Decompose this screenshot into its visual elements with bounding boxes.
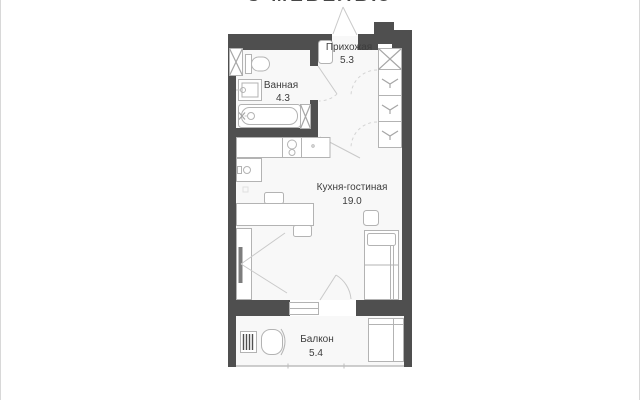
hallway-label: Прихожая (326, 42, 372, 53)
kitchen-living-label: Кухня-гостиная (317, 182, 388, 193)
floor-plan-screenshot: С МЕБЕЛЬЮ (0, 0, 640, 400)
wall-entry-step (374, 22, 394, 44)
kitchen-sink (237, 159, 262, 182)
wall-bottom-left (228, 300, 290, 316)
balcony-area: 5.4 (309, 348, 323, 359)
bathroom-label: Ванная (264, 80, 298, 91)
wall-bath-bottom (236, 128, 318, 138)
bathtub (239, 105, 301, 128)
wall-left (228, 34, 236, 316)
wall-bottom-right (356, 300, 412, 316)
wall-balcony-right (404, 316, 412, 367)
wall-bath-hall-lower (310, 100, 318, 128)
floor-plan-drawing: Прихожая 5.3 Ванная 4.3 Кухня-гостиная 1… (0, 0, 640, 400)
chair (294, 226, 312, 237)
radiator (241, 332, 257, 353)
toilet (246, 55, 270, 74)
chair (265, 193, 284, 204)
bathroom-sink (236, 80, 262, 101)
stool (364, 211, 379, 226)
kitchen-counter (237, 138, 331, 158)
hallway-area: 5.3 (340, 55, 354, 66)
bathroom-area: 4.3 (276, 93, 290, 104)
x-cross-icon (230, 49, 243, 76)
wall-right (402, 44, 412, 316)
bottom-window (290, 303, 319, 315)
bed (365, 231, 399, 300)
balcony-bench (369, 319, 404, 362)
x-cross-icon (301, 105, 311, 129)
kitchen-living-area: 19.0 (342, 196, 362, 207)
stove (283, 138, 302, 158)
wall-top (228, 34, 332, 50)
wall-balcony-left (228, 316, 236, 367)
balcony-label: Балкон (300, 334, 334, 345)
wall-bath-hall-upper (310, 50, 318, 66)
entrance-door-swing (333, 7, 357, 35)
